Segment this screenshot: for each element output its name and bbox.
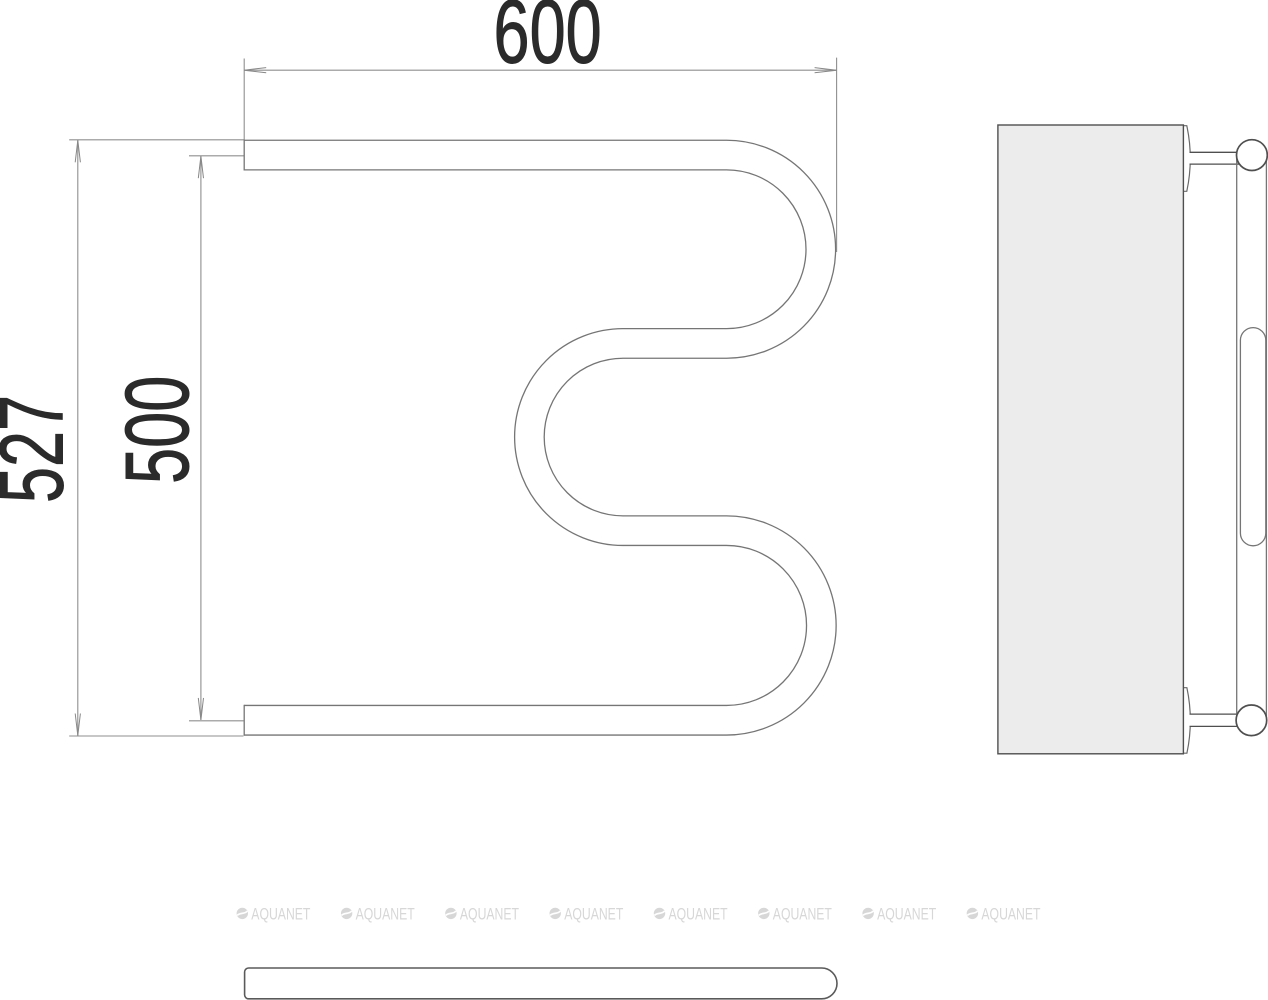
svg-text:600: 600: [494, 0, 602, 82]
svg-text:AQUANET: AQUANET: [356, 906, 415, 924]
svg-text:527: 527: [0, 395, 82, 503]
svg-text:AQUANET: AQUANET: [877, 906, 936, 924]
svg-text:AQUANET: AQUANET: [773, 906, 832, 924]
svg-text:500: 500: [107, 376, 208, 484]
svg-text:AQUANET: AQUANET: [981, 906, 1040, 924]
svg-text:AQUANET: AQUANET: [460, 906, 519, 924]
svg-text:AQUANET: AQUANET: [669, 906, 728, 924]
svg-text:AQUANET: AQUANET: [564, 906, 623, 924]
svg-text:AQUANET: AQUANET: [251, 906, 310, 924]
